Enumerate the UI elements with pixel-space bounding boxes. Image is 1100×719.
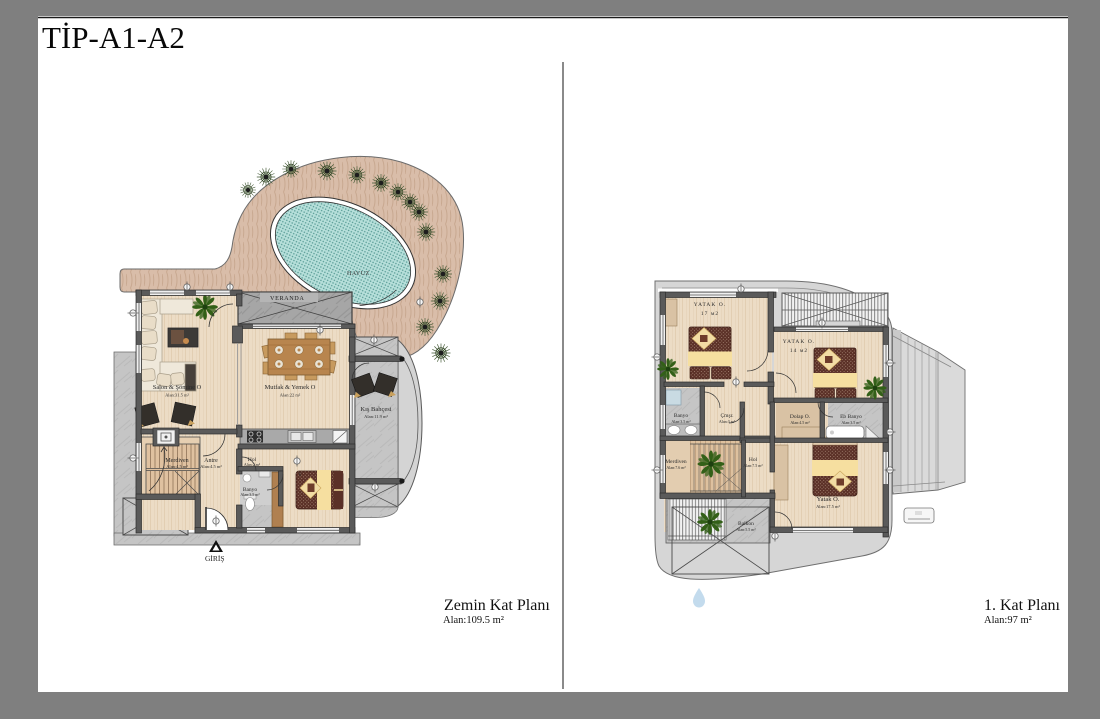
svg-text:17 м2: 17 м2 [701,311,719,317]
svg-text:Kış Bahçesi: Kış Bahçesi [360,406,391,413]
svg-text:Alan:2 m²: Alan:2 m² [244,462,261,467]
svg-text:Alan:22 m²: Alan:22 m² [280,393,301,398]
svg-text:Y: Y [298,472,302,478]
svg-text:14 м2: 14 м2 [790,348,808,354]
svg-text:Alan:3.5 m²: Alan:3.5 m² [841,420,861,425]
svg-text:Alan:3.5 m²: Alan:3.5 m² [240,492,260,497]
svg-text:Zemin Kat Planı: Zemin Kat Planı [444,597,550,614]
svg-text:Alan:4.5 m²: Alan:4.5 m² [790,420,810,425]
svg-text:Mutfak & Yemek O: Mutfak & Yemek O [265,384,316,391]
svg-text:Alan:5.5 m²: Alan:5.5 m² [736,527,756,532]
svg-text:Alan:17.5 m²: Alan:17.5 m² [816,504,840,509]
svg-text:Alan:11.9 m²: Alan:11.9 m² [364,414,388,419]
svg-text:YATAK O.: YATAK O. [783,339,816,345]
svg-text:Alan:97 m²: Alan:97 m² [984,615,1032,626]
svg-text:Alan:3 m²: Alan:3 m² [719,419,736,424]
svg-text:VERANDA: VERANDA [270,295,304,302]
svg-text:Alan:7.6 m²: Alan:7.6 m² [666,465,686,470]
svg-text:1. Kat Planı: 1. Kat Planı [984,597,1061,614]
svg-text:Alan:4.5 m²: Alan:4.5 m² [200,464,222,469]
svg-text:Alan:7.5 m²: Alan:7.5 m² [743,463,763,468]
svg-text:Salon & Şömine O: Salon & Şömine O [153,384,202,391]
svg-text:Alan:3.5 m²: Alan:3.5 m² [671,419,691,424]
svg-text:HAVUZ: HAVUZ [347,271,370,277]
svg-text:TİP-A1-A2: TİP-A1-A2 [42,20,185,55]
svg-text:Yatak O.: Yatak O. [817,496,840,503]
svg-text:Alan:4.5 m²: Alan:4.5 m² [166,464,188,469]
svg-text:GİRİŞ: GİRİŞ [205,554,225,563]
svg-text:Alan:109.5 m²: Alan:109.5 m² [443,615,504,626]
svg-text:Alan:31.5 m²: Alan:31.5 m² [165,393,189,398]
svg-text:YATAK O.: YATAK O. [694,302,727,308]
